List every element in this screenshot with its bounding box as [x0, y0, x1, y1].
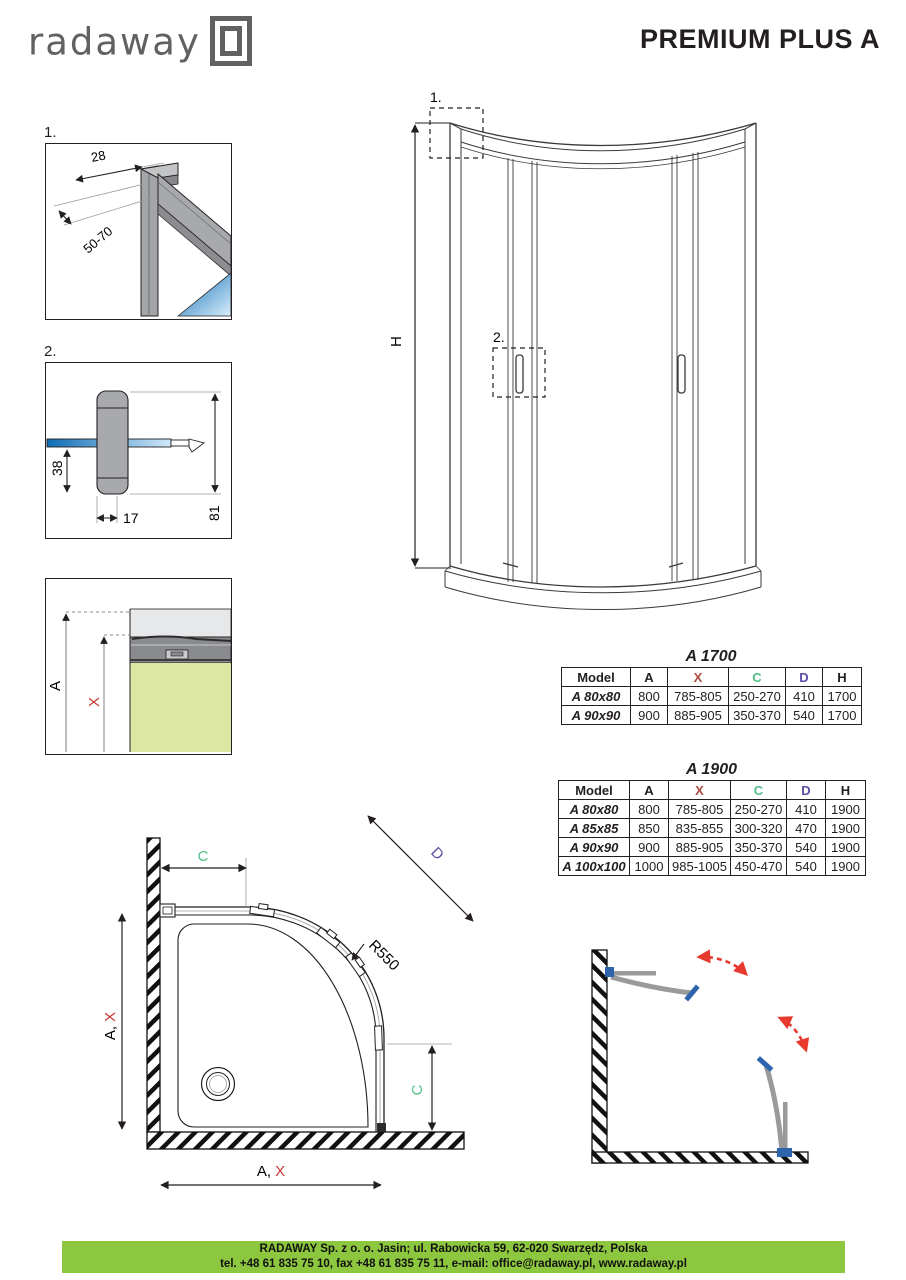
dim-17: 17 [97, 496, 139, 526]
detail2-box: 38 17 81 [45, 362, 232, 539]
table-cell: 350-370 [729, 706, 786, 725]
slide-direction-arrow-right [780, 1018, 806, 1050]
dim-81-label: 81 [206, 505, 222, 521]
table-cell: 885-905 [669, 838, 731, 857]
table-cell: 1700 [823, 687, 862, 706]
dim-c-top: C [162, 848, 246, 906]
table-cell: 785-805 [669, 800, 731, 819]
dim-h-label: H [388, 336, 405, 347]
footer-bar: RADAWAY Sp. z o. o. Jasin; ul. Rabowicka… [62, 1241, 845, 1273]
door-frame-section [158, 174, 231, 276]
table-cell: A 85x85 [559, 819, 630, 838]
door-handle-left [516, 355, 523, 393]
dim-x: X [86, 635, 130, 752]
footer-contact: tel. +48 61 835 75 10, fax +48 61 835 75… [220, 1257, 687, 1272]
table-cell: 410 [787, 800, 826, 819]
table-cell: 885-905 [668, 706, 729, 725]
col-header-a: A [631, 668, 668, 687]
dim-x-label: X [275, 1163, 285, 1180]
dim-38: 38 [49, 450, 67, 492]
dim-a-label: A, [102, 1026, 119, 1040]
table-row: A 90x90 900 885-905 350-370 540 1900 [559, 838, 866, 857]
detail1-drawing: 28 50-70 [46, 144, 231, 319]
dim-50-70: 50-70 [54, 184, 152, 256]
table-cell: 470 [787, 819, 826, 838]
dim-d-label: D [427, 844, 447, 864]
dim-d: D [368, 816, 473, 921]
wall-bottom [147, 1132, 464, 1149]
logo-square-inner [220, 26, 242, 56]
table-cell: 1900 [826, 800, 866, 819]
handle-dot [777, 1148, 792, 1157]
dim-a-label: A, [257, 1163, 271, 1180]
table-row: A 80x80 800 785-805 250-270 410 1700 [562, 687, 862, 706]
dim-38-label: 38 [49, 460, 65, 476]
dim-50-70-label: 50-70 [80, 223, 115, 256]
table-cell: 835-855 [669, 819, 731, 838]
col-header-h: H [826, 781, 866, 800]
table-cell: 300-320 [731, 819, 787, 838]
glass-section [178, 273, 231, 316]
dim-a: A [47, 612, 130, 752]
callout-2-label: 2. [493, 329, 505, 345]
table-cell: 410 [786, 687, 823, 706]
col-header-c: C [731, 781, 787, 800]
col-header-x: X [669, 781, 731, 800]
col-header-c: C [729, 668, 786, 687]
table-header-row: Model A X C D H [562, 668, 862, 687]
dim-c-right: C [387, 1044, 452, 1130]
tray-section [130, 609, 231, 752]
table-cell: 540 [787, 838, 826, 857]
handle-dot [605, 967, 614, 977]
table-cell: 540 [786, 706, 823, 725]
table-cell: 540 [787, 857, 826, 876]
table-cell: 785-805 [668, 687, 729, 706]
col-header-x: X [668, 668, 729, 687]
table-cell: 900 [631, 706, 668, 725]
table-row: A 90x90 900 885-905 350-370 540 1700 [562, 706, 862, 725]
table-cell: 350-370 [731, 838, 787, 857]
dim-81: 81 [130, 392, 222, 521]
logo-wordmark: radaway [28, 19, 201, 63]
dim-h: H [388, 123, 451, 568]
table-row: A 100x100 1000 985-1005 450-470 540 1900 [559, 857, 866, 876]
callout-1-label: 1. [430, 89, 442, 105]
door-panels [503, 152, 698, 583]
table-a1900-title: A 1900 [558, 761, 865, 779]
table-a1900: Model A X C D H A 80x80 800 785-805 250-… [558, 780, 866, 876]
elevation-drawing: H [385, 85, 815, 625]
door-opening-schematic [555, 925, 855, 1215]
detail2-drawing: 38 17 81 [46, 363, 231, 538]
wall-left [147, 838, 160, 1132]
table-a1700: Model A X C D H A 80x80 800 785-805 250-… [561, 667, 862, 725]
table-header-row: Model A X C D H [559, 781, 866, 800]
door-handle-right [678, 355, 685, 393]
wall-bottom [592, 1152, 808, 1163]
table-row: A 80x80 800 785-805 250-270 410 1900 [559, 800, 866, 819]
dim-x-label: X [102, 1012, 119, 1022]
page-title: PREMIUM PLUS A [640, 24, 880, 55]
table-cell: 800 [631, 687, 668, 706]
table-cell: A 80x80 [559, 800, 630, 819]
footer-address: RADAWAY Sp. z o. o. Jasin; ul. Rabowicka… [260, 1242, 648, 1257]
table-cell: 1900 [826, 838, 866, 857]
dim-c-top-label: C [198, 848, 209, 865]
table-cell: 1000 [630, 857, 669, 876]
sliding-door-bottom [757, 1056, 792, 1157]
detail2-label: 2. [44, 343, 57, 360]
table-row: A 85x85 850 835-855 300-320 470 1900 [559, 819, 866, 838]
col-header-h: H [823, 668, 862, 687]
table-cell: 250-270 [729, 687, 786, 706]
datasheet-page: radaway PREMIUM PLUS A 1. [0, 0, 906, 1280]
table-cell: A 90x90 [559, 838, 630, 857]
table-a1700-title: A 1700 [561, 648, 861, 666]
wall-left [592, 950, 607, 1163]
table-cell: A 90x90 [562, 706, 631, 725]
svg-text:A,X: A,X [257, 1163, 285, 1180]
col-header-model: Model [562, 668, 631, 687]
table-cell: 450-470 [731, 857, 787, 876]
table-cell: 1900 [826, 819, 866, 838]
col-header-d: D [787, 781, 826, 800]
dim-ax-left: A,X [102, 914, 122, 1129]
dim-28-label: 28 [90, 147, 107, 164]
plan-view-drawing: C A,X D R550 C A,X [100, 800, 500, 1220]
table-cell: 800 [630, 800, 669, 819]
logo-square-icon [210, 16, 252, 66]
col-header-a: A [630, 781, 669, 800]
radius-label: R550 [365, 937, 402, 974]
col-header-d: D [786, 668, 823, 687]
detail1-box: 28 50-70 [45, 143, 232, 320]
table-cell: 250-270 [731, 800, 787, 819]
dim-17-label: 17 [123, 510, 139, 526]
enclosure-frame [445, 123, 761, 610]
table-cell: 985-1005 [669, 857, 731, 876]
dim-c-right-label: C [409, 1084, 426, 1095]
table-cell: A 100x100 [559, 857, 630, 876]
col-header-model: Model [559, 781, 630, 800]
radaway-logo: radaway [28, 16, 252, 66]
dim-a-label: A [47, 681, 64, 691]
detail3-drawing: A X [46, 579, 231, 754]
table-cell: A 80x80 [562, 687, 631, 706]
handle-section [97, 391, 128, 494]
detail3-box: A X [45, 578, 232, 755]
detail1-label: 1. [44, 124, 57, 141]
table-cell: 1900 [826, 857, 866, 876]
dim-x-label: X [86, 697, 103, 707]
dim-ax-bottom: A,X [161, 1163, 381, 1185]
svg-text:A,X: A,X [102, 1012, 119, 1040]
table-cell: 900 [630, 838, 669, 857]
table-cell: 1700 [823, 706, 862, 725]
sliding-door-top [605, 967, 700, 1002]
slide-direction-arrow-top [699, 957, 746, 974]
table-cell: 850 [630, 819, 669, 838]
